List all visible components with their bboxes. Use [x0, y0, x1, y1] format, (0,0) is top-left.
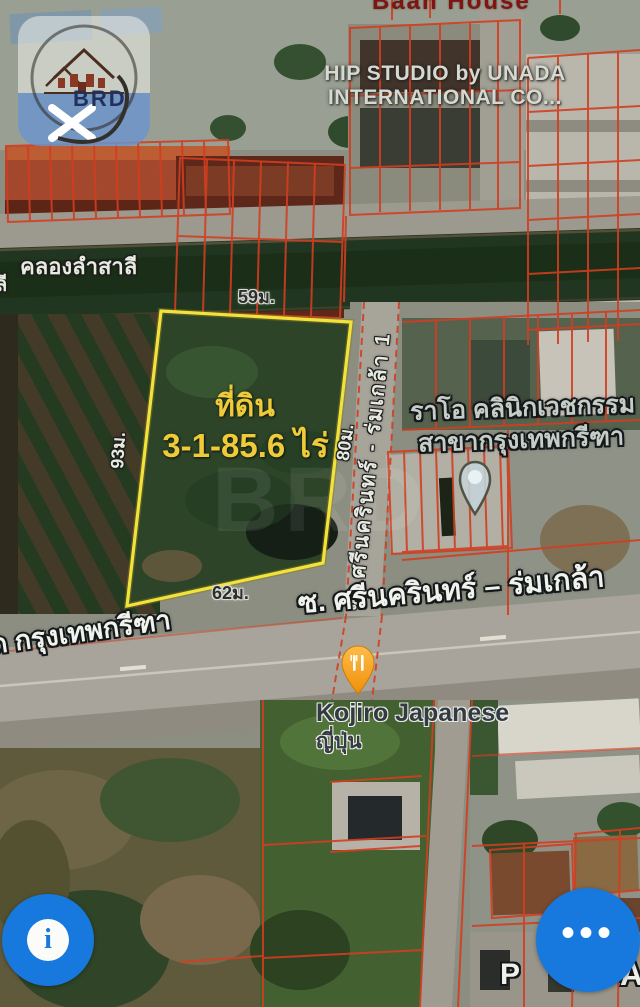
map-screenshot[interactable]: BRD Baan House HIP STUDIO by UNADA INTER… — [0, 0, 640, 1007]
plot-area: 3-1-85.6 ไร่ — [148, 427, 343, 465]
studio-credit-line2: INTERNATIONAL CO... — [270, 86, 620, 110]
plot-side-top-measure: 59ม. — [238, 287, 275, 308]
bottom-right-fragment-left: P — [500, 958, 520, 992]
ellipsis-icon: ••• — [561, 913, 615, 953]
canal-label-fragment: ลี — [0, 274, 7, 297]
studio-credit-line1: HIP STUDIO by UNADA — [270, 62, 620, 86]
plot-side-bottom-measure: 62ม. — [212, 583, 249, 604]
restaurant-pin-icon — [340, 645, 376, 695]
logo-art — [18, 16, 150, 146]
logo-text: BRD — [73, 86, 127, 112]
info-icon-glyph: i — [44, 926, 52, 954]
canal-label: คลองลำสาลี — [20, 254, 137, 279]
info-button[interactable]: i — [2, 894, 94, 986]
more-options-button[interactable]: ••• — [536, 888, 640, 992]
restaurant-sub-label: ญี่ปุ่น — [316, 730, 362, 754]
brd-logo-watermark: BRD — [18, 16, 150, 146]
place-pin-icon — [458, 460, 492, 518]
info-icon: i — [27, 919, 69, 961]
plot-title: ที่ดิน — [180, 390, 310, 425]
studio-credit: HIP STUDIO by UNADA INTERNATIONAL CO... — [270, 62, 620, 110]
plot-side-left-measure: 93ม. — [107, 431, 130, 469]
restaurant-name-label: Kojiro Japanese — [316, 699, 509, 728]
cropped-top-label: Baan House — [372, 0, 531, 16]
